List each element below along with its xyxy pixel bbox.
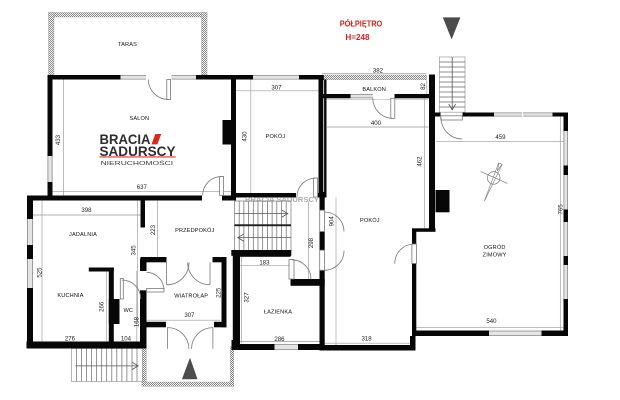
svg-text:307: 307 — [271, 84, 282, 91]
svg-text:WIATROŁAP: WIATROŁAP — [174, 293, 208, 299]
svg-text:H=248: H=248 — [345, 33, 370, 42]
svg-text:286: 286 — [274, 336, 285, 343]
svg-text:104: 104 — [121, 336, 132, 343]
svg-text:KUCHNIA: KUCHNIA — [57, 293, 83, 299]
svg-text:168: 168 — [134, 316, 141, 327]
svg-text:OGRÓD: OGRÓD — [484, 244, 506, 251]
svg-text:430: 430 — [242, 131, 249, 142]
svg-text:223: 223 — [150, 224, 157, 235]
svg-text:307: 307 — [184, 312, 195, 319]
svg-text:398: 398 — [81, 207, 92, 214]
svg-text:459: 459 — [495, 134, 506, 141]
svg-text:WC: WC — [123, 308, 133, 314]
svg-text:JADALNIA: JADALNIA — [69, 232, 97, 238]
svg-text:BALKON: BALKON — [362, 87, 386, 93]
svg-text:904: 904 — [329, 216, 336, 227]
svg-text:765: 765 — [558, 204, 565, 215]
svg-text:318: 318 — [362, 336, 373, 343]
svg-text:462: 462 — [417, 156, 424, 167]
svg-text:PÓŁPIĘTRO: PÓŁPIĘTRO — [340, 17, 383, 28]
svg-text:BRACIA SADURSCY: BRACIA SADURSCY — [245, 197, 319, 204]
svg-text:ŁAZIENKA: ŁAZIENKA — [264, 309, 292, 315]
svg-text:225: 225 — [216, 287, 223, 298]
svg-text:298: 298 — [308, 237, 315, 248]
svg-text:POKÓJ: POKÓJ — [360, 217, 380, 224]
svg-text:637: 637 — [137, 184, 148, 191]
svg-text:PRZEDPOKÓJ: PRZEDPOKÓJ — [175, 227, 214, 234]
svg-text:TARAS: TARAS — [118, 42, 137, 48]
svg-text:382: 382 — [373, 68, 384, 75]
svg-text:ZIMOWY: ZIMOWY — [483, 252, 507, 258]
svg-text:400: 400 — [371, 120, 382, 127]
svg-text:540: 540 — [486, 318, 497, 325]
svg-text:327: 327 — [243, 292, 250, 303]
svg-text:82: 82 — [420, 83, 427, 90]
svg-text:POKÓJ: POKÓJ — [266, 133, 286, 140]
svg-text:183: 183 — [259, 260, 270, 267]
svg-text:SALON: SALON — [130, 116, 150, 122]
svg-text:276: 276 — [65, 336, 76, 343]
svg-text:345: 345 — [130, 245, 137, 256]
svg-text:266: 266 — [98, 301, 105, 312]
svg-text:NIERUCHOMOŚCI: NIERUCHOMOŚCI — [101, 159, 174, 167]
svg-text:525: 525 — [37, 267, 44, 278]
svg-text:433: 433 — [55, 134, 62, 145]
